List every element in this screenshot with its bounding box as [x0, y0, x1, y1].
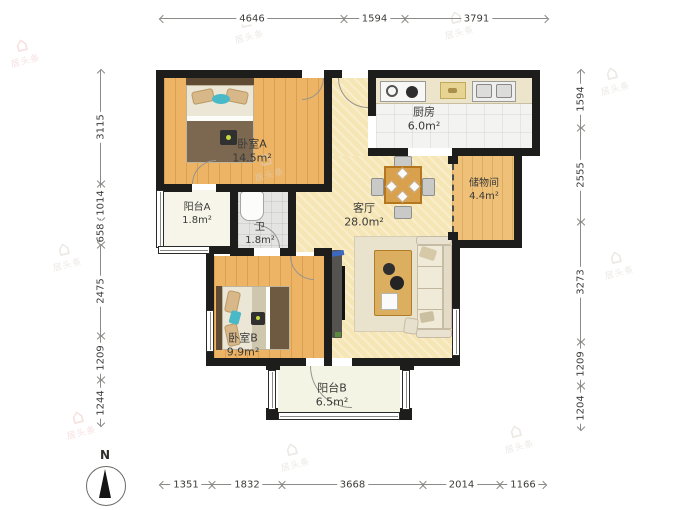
floorplan-canvas: 卧室A14.5m² 厨房6.0m² 储物间4.4m² 客厅28.0m² 阳台A1… [0, 0, 680, 510]
wall [532, 70, 540, 156]
watermark: ⌂居头条 [4, 31, 41, 70]
dimension-label: 3115 [96, 111, 107, 142]
sofa-armrest [416, 236, 452, 245]
sofa-seam [418, 309, 442, 310]
dimension-bottom: 1351 [160, 484, 212, 485]
room-label-bath: 卫1.8m² [245, 221, 275, 247]
watermark-house-icon: ⌂ [283, 437, 300, 459]
wall [278, 358, 306, 366]
dimension-bottom: 2014 [423, 484, 500, 485]
sofa-armrest [416, 329, 452, 338]
dimension-top: 1594 [344, 18, 405, 19]
wall [368, 148, 408, 156]
wall [156, 70, 164, 190]
dimension-label: 1204 [576, 392, 587, 423]
room-label-balcony-b: 阳台B6.5m² [316, 382, 349, 411]
dimension-label: 658 [96, 220, 107, 245]
room-label-bedroom-a: 卧室A14.5m² [232, 138, 272, 167]
north-arrow-icon [99, 469, 111, 498]
watermark-text: 居头条 [9, 50, 41, 70]
dimension-label: 1351 [170, 480, 201, 491]
dimension-label: 1166 [507, 480, 538, 491]
floor-living-nook [296, 192, 332, 252]
watermark-house-icon: ⌂ [603, 61, 620, 83]
dimension-label: 1209 [96, 342, 107, 373]
stove-burner [386, 85, 398, 97]
dimension-label: 2475 [96, 275, 107, 306]
watermark-text: 居头条 [503, 436, 535, 456]
room-label-storage: 储物间4.4m² [469, 177, 499, 203]
tv-screen [342, 266, 345, 320]
watermark-text: 居头条 [51, 254, 83, 274]
watermark-house-icon: ⌂ [507, 419, 524, 441]
watermark-text: 居头条 [233, 26, 265, 46]
watermark-text: 居头条 [443, 22, 475, 42]
dimension-label: 2555 [576, 159, 587, 190]
bed-a-tray-dot [226, 135, 231, 140]
wall [514, 148, 522, 248]
window [402, 370, 410, 410]
sofa-seam [418, 288, 442, 289]
watermark-text: 居头条 [603, 262, 635, 282]
window [452, 308, 460, 356]
dimension-left: 1209 [100, 336, 101, 380]
bed-b-blanket [270, 287, 289, 349]
tv-stand [332, 250, 342, 338]
dimension-label: 4646 [236, 14, 267, 25]
wall [452, 240, 522, 248]
dimension-top: 3791 [405, 18, 548, 19]
wall [206, 248, 214, 310]
watermark-house-icon: ⌂ [13, 33, 30, 55]
board-item [448, 88, 457, 93]
sofa-seam [418, 266, 442, 267]
dimension-right: 1204 [580, 386, 581, 430]
watermark: ⌂居头条 [598, 243, 635, 282]
accent-pillow [212, 94, 230, 104]
watermark-text: 居头条 [65, 422, 97, 442]
balcony-post [400, 358, 414, 370]
dimension-label: 3791 [461, 14, 492, 25]
window [268, 370, 276, 410]
wall [448, 156, 458, 164]
sofa-back [443, 245, 452, 329]
watermark: ⌂居头条 [594, 59, 631, 98]
window [156, 190, 164, 248]
dimension-label: 1594 [359, 14, 390, 25]
dimension-label: 1014 [96, 187, 107, 218]
sink-basin [476, 84, 492, 98]
watermark-text: 居头条 [279, 454, 311, 474]
watermark-house-icon: ⌂ [69, 405, 86, 427]
wall [368, 78, 376, 116]
dimension-left: 1244 [100, 380, 101, 426]
watermark: ⌂居头条 [498, 417, 535, 456]
stove-burner [406, 86, 418, 98]
bed-a-headboard [186, 78, 254, 85]
dimension-left: 2475 [100, 245, 101, 336]
decor-card [381, 293, 398, 310]
watermark-house-icon: ⌂ [607, 245, 624, 267]
dimension-bottom: 1166 [500, 484, 546, 485]
wall [452, 148, 540, 156]
room-label-balcony-a: 阳台A1.8m² [182, 201, 212, 227]
sofa-chaise-cushion [403, 317, 419, 335]
dimension-right: 1594 [580, 70, 581, 128]
compass-north-label: N [100, 448, 110, 462]
dimension-label: 1832 [231, 480, 262, 491]
room-label-living: 客厅28.0m² [344, 202, 384, 231]
dimension-right: 2555 [580, 128, 581, 222]
dining-chair [371, 178, 384, 196]
tv-decor [335, 332, 341, 337]
dining-chair [422, 178, 435, 196]
watermark: ⌂居头条 [274, 435, 311, 474]
dimension-label: 3668 [337, 480, 368, 491]
wall [156, 70, 302, 78]
sink-basin [496, 84, 512, 98]
wall [324, 76, 332, 186]
watermark-house-icon: ⌂ [55, 237, 72, 259]
bed-b-tray-dot [256, 316, 260, 320]
wall [230, 184, 238, 256]
wall [452, 356, 460, 366]
dimension-left: 1014 [100, 184, 101, 221]
dimension-bottom: 3668 [282, 484, 423, 485]
wall [288, 184, 296, 256]
watermark: ⌂居头条 [60, 403, 97, 442]
wall [206, 352, 214, 366]
wall [352, 358, 404, 366]
dimension-right: 1209 [580, 342, 581, 386]
wall [448, 232, 458, 240]
window [206, 310, 214, 352]
decor [383, 263, 395, 275]
watermark-text: 居头条 [599, 78, 631, 98]
window [278, 412, 400, 420]
room-label-bedroom-b: 卧室B9.9m² [227, 332, 260, 361]
wall [452, 240, 460, 308]
balcony-post [266, 358, 280, 370]
bath-fixture [240, 191, 264, 221]
wall [324, 248, 332, 366]
dimension-bottom: 1832 [212, 484, 282, 485]
watermark: ⌂居头条 [46, 235, 83, 274]
dimension-top: 4646 [160, 18, 344, 19]
storage-opening [452, 164, 454, 232]
dimension-left: 658 [100, 221, 101, 245]
dimension-label: 2014 [446, 480, 477, 491]
dimension-label: 1244 [96, 387, 107, 418]
dimension-label: 3273 [576, 266, 587, 297]
decor [390, 276, 404, 290]
dimension-left: 3115 [100, 70, 101, 184]
dining-chair [394, 206, 412, 219]
room-label-kitchen: 厨房6.0m² [408, 106, 441, 135]
dimension-right: 3273 [580, 222, 581, 342]
dimension-label: 1594 [576, 83, 587, 114]
dimension-label: 1209 [576, 348, 587, 379]
wall [368, 70, 540, 78]
window [158, 246, 210, 254]
